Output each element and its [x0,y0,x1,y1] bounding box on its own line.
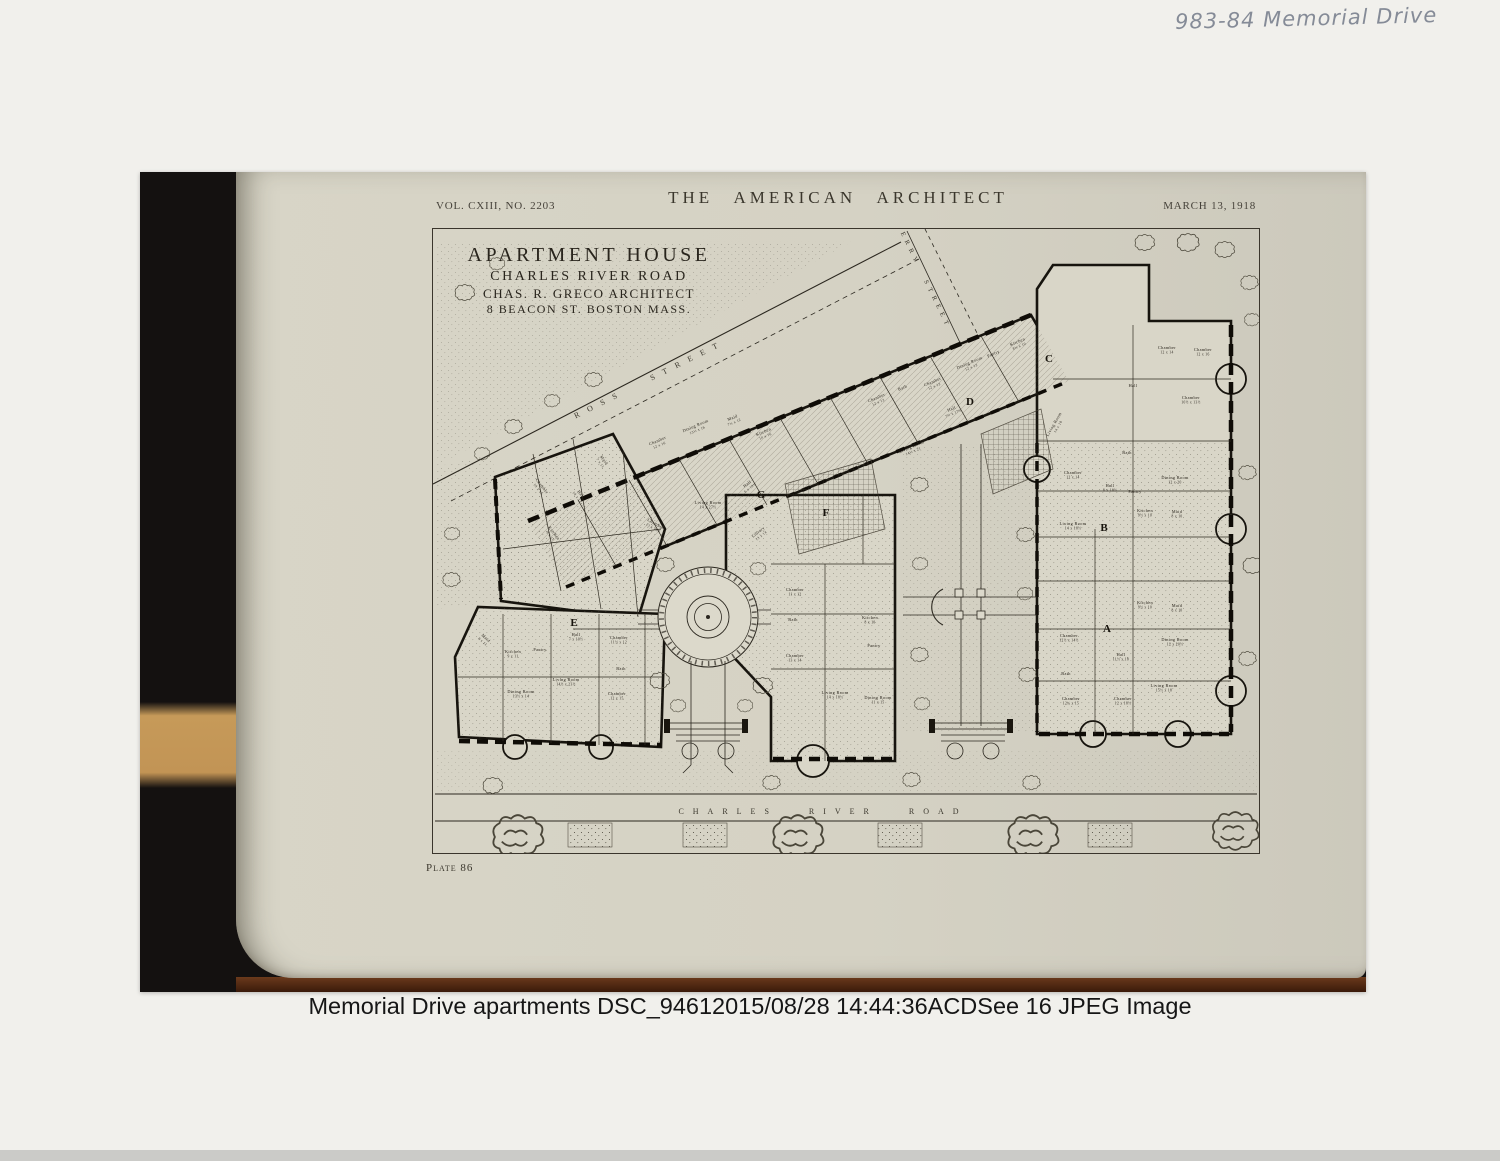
room-label: Chamber12¾ x 15 [1062,696,1080,706]
room-label: Chamber12 x 14 [1158,345,1176,355]
room-label: Bath [1061,671,1071,676]
bottom-edge-bar [0,1150,1500,1161]
room-label: Chamber12 x 15 [608,691,626,701]
architect-address: 8 BEACON ST. BOSTON MASS. [457,302,721,316]
room-label: Chamber13 x 14 [786,653,804,663]
plan-border-frame: ROSS STREET GERRY STREET [432,228,1260,854]
entry-letter-G: G [757,489,766,501]
room-label: Maid8 x 10 [1171,509,1182,519]
entry-letter-B: B [1100,522,1108,534]
room-label: Dining Room13½ x 16 [682,418,711,438]
room-label: Kitchen9½ x 10 [1137,600,1154,610]
project-title: APARTMENT HOUSE [457,243,721,268]
journal-date: MARCH 13, 1918 [1163,200,1256,212]
street-label-charles-river-road: CHARLES RIVER ROAD [678,807,967,816]
room-label: Bath [788,617,798,622]
room-label: Maid8 x 10 [1171,603,1182,613]
entry-letter-F: F [823,507,830,519]
entry-letter-C: C [1045,353,1053,365]
plate-number: Plate 86 [426,862,473,874]
screenshot-root: { "annotation": { "text": "983-84 Memori… [0,0,1500,1161]
room-label: Chamber11 x 12 [786,587,804,597]
room-label: Pantry [533,647,547,652]
project-street: CHARLES RIVER ROAD [457,268,721,286]
room-label: Chamber12 x 16 [1194,347,1212,357]
room-label: Chamber12½ x 14½ [1059,633,1078,643]
room-label: Chamber12 x 14 [1064,470,1082,480]
room-label: Kitchen9½ x 10 [1137,508,1154,518]
site-plan-drawing: ROSS STREET GERRY STREET [433,229,1259,853]
architect-name: CHAS. R. GRECO ARCHITECT [457,286,721,302]
room-label: Bath [1122,450,1132,455]
room-label: Chamber11½ x 12 [610,635,628,645]
handwritten-annotation: 983-84 Memorial Drive [1175,2,1476,34]
entry-letter-A: A [1103,623,1111,635]
entry-letter-D: D [966,396,974,408]
journal-title: THE AMERICAN ARCHITECT [668,188,1008,208]
drawing-title-block: APARTMENT HOUSE CHARLES RIVER ROAD CHAS.… [457,243,721,317]
wood-table-stripe [140,702,236,788]
entry-letter-E: E [570,617,577,629]
image-viewer-caption: Memorial Drive apartments DSC_94612015/0… [0,993,1500,1020]
room-label: Pantry [1128,489,1142,494]
room-label: Chamber10½ x 13½ [1181,395,1200,405]
room-label: Hall [1129,383,1138,388]
room-label: Pantry [867,643,881,648]
room-label: Maid7½ x 12 [725,413,742,427]
room-label: Chamber12 x 18½ [1114,696,1132,706]
table-edge [236,977,1366,992]
journal-volume: VOL. CXIII, NO. 2203 [436,200,555,212]
magazine-page: VOL. CXIII, NO. 2203 THE AMERICAN ARCHIT… [236,172,1366,978]
room-label: Bath [616,666,626,671]
photo-of-magazine-page: VOL. CXIII, NO. 2203 THE AMERICAN ARCHIT… [140,172,1366,992]
street-label-gerry: GERRY STREET [895,229,953,330]
book-gutter-shadow [140,172,236,992]
room-label: Living Room14½ x 23½ [553,677,580,687]
room-label: Chamber12 x 16 [648,435,669,451]
